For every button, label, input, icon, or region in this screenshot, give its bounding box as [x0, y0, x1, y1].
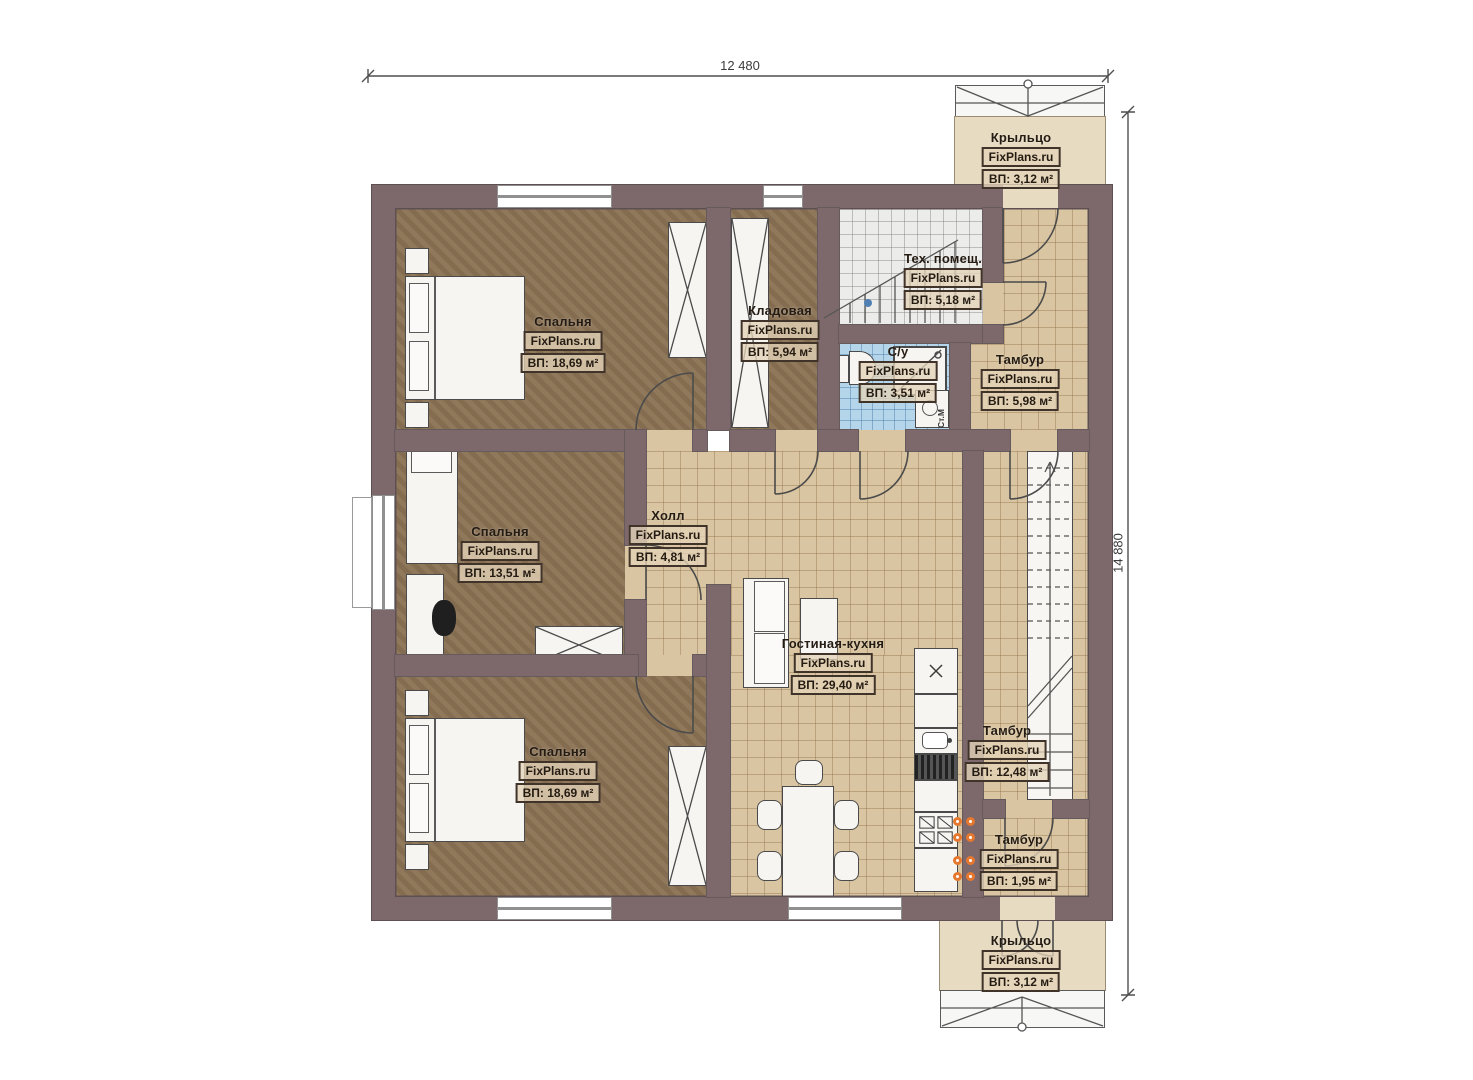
room-name: Тамбур [965, 723, 1050, 738]
window [497, 897, 612, 920]
watermark: FixPlans.ru [980, 849, 1059, 869]
wall [950, 343, 970, 430]
room-name: Спальня [458, 524, 543, 539]
watermark: FixPlans.ru [982, 950, 1061, 970]
label-bathroom: С/у FixPlans.ru ВП: 3,51 м² [859, 344, 938, 403]
wall [395, 430, 638, 451]
room-name: С/у [859, 344, 938, 359]
label-living-kitchen: Гостиная-кухня FixPlans.ru ВП: 29,40 м² [782, 636, 884, 695]
wall [983, 208, 1003, 282]
watermark: FixPlans.ru [741, 320, 820, 340]
watermark: FixPlans.ru [461, 541, 540, 561]
window [788, 897, 902, 920]
label-hall: Холл FixPlans.ru ВП: 4,81 м² [629, 508, 708, 567]
room-area: ВП: 3,12 м² [982, 169, 1060, 189]
wall [1053, 800, 1089, 818]
room-area: ВП: 3,12 м² [982, 972, 1060, 992]
wall [983, 325, 1003, 343]
watermark: FixPlans.ru [629, 525, 708, 545]
label-porch-bottom: Крыльцо FixPlans.ru ВП: 3,12 м² [982, 933, 1061, 992]
radiator-dot [953, 856, 962, 865]
room-name: Крыльцо [982, 933, 1061, 948]
porch-bottom-steps [940, 990, 1105, 1028]
watermark: FixPlans.ru [981, 369, 1060, 389]
radiator-dot [953, 817, 962, 826]
label-bedroom-top: Спальня FixPlans.ru ВП: 18,69 м² [521, 314, 606, 373]
room-name: Кладовая [741, 303, 820, 318]
watermark: FixPlans.ru [524, 331, 603, 351]
label-tambour-bottom: Тамбур FixPlans.ru ВП: 1,95 м² [980, 832, 1059, 891]
radiator-dot [966, 833, 975, 842]
watermark: FixPlans.ru [904, 268, 983, 288]
room-area: ВП: 5,98 м² [981, 391, 1059, 411]
watermark: FixPlans.ru [794, 653, 873, 673]
dimension-right-label: 14 880 [1111, 533, 1126, 573]
room-name: Тамбур [981, 352, 1060, 367]
porch-top-steps [955, 85, 1105, 117]
room-area: ВП: 5,94 м² [741, 342, 819, 362]
wall [730, 430, 775, 451]
wall [839, 325, 983, 343]
room-area: ВП: 1,95 м² [980, 871, 1058, 891]
radiator-dot [953, 872, 962, 881]
label-tambour-top: Тамбур FixPlans.ru ВП: 5,98 м² [981, 352, 1060, 411]
room-area: ВП: 5,18 м² [904, 290, 982, 310]
window [497, 185, 612, 208]
room-area: ВП: 18,69 м² [516, 783, 601, 803]
radiator-dot [953, 833, 962, 842]
wall [818, 430, 858, 451]
room-area: ВП: 29,40 м² [791, 675, 876, 695]
watermark: FixPlans.ru [859, 361, 938, 381]
window [372, 495, 395, 610]
wall [693, 430, 707, 451]
wall [963, 451, 983, 897]
wall [707, 585, 730, 897]
window-sill [352, 497, 372, 608]
wall [1058, 430, 1089, 451]
label-bedroom-mid: Спальня FixPlans.ru ВП: 13,51 м² [458, 524, 543, 583]
label-bedroom-bottom: Спальня FixPlans.ru ВП: 18,69 м² [516, 744, 601, 803]
room-name: Холл [629, 508, 708, 523]
label-porch-top: Крыльцо FixPlans.ru ВП: 3,12 м² [982, 130, 1061, 189]
dimension-top-label: 12 480 [720, 58, 760, 73]
watermark: FixPlans.ru [982, 147, 1061, 167]
radiator-dot [966, 856, 975, 865]
room-area: ВП: 3,51 м² [859, 383, 937, 403]
wall [693, 655, 707, 676]
room-area: ВП: 13,51 м² [458, 563, 543, 583]
room-name: Спальня [516, 744, 601, 759]
watermark: FixPlans.ru [519, 761, 598, 781]
room-name: Тех. помещ. [904, 251, 983, 266]
label-tech-room: Тех. помещ. FixPlans.ru ВП: 5,18 м² [904, 251, 983, 310]
floor-plan-canvas: Ст.М [0, 0, 1473, 1080]
room-area: ВП: 18,69 м² [521, 353, 606, 373]
room-name: Гостиная-кухня [782, 636, 884, 651]
wall [983, 800, 1005, 818]
wall [395, 655, 638, 676]
entrance-bottom-gap [1000, 897, 1055, 920]
label-tambour-mid: Тамбур FixPlans.ru ВП: 12,48 м² [965, 723, 1050, 782]
room-name: Крыльцо [982, 130, 1061, 145]
radiator-dot [966, 817, 975, 826]
wall [707, 208, 730, 430]
window [763, 185, 803, 208]
radiator-dot [966, 872, 975, 881]
room-area: ВП: 12,48 м² [965, 762, 1050, 782]
label-storage: Кладовая FixPlans.ru ВП: 5,94 м² [741, 303, 820, 362]
room-name: Спальня [521, 314, 606, 329]
wall [818, 208, 839, 451]
room-area: ВП: 4,81 м² [629, 547, 707, 567]
room-name: Тамбур [980, 832, 1059, 847]
wall [906, 430, 1010, 451]
watermark: FixPlans.ru [968, 740, 1047, 760]
